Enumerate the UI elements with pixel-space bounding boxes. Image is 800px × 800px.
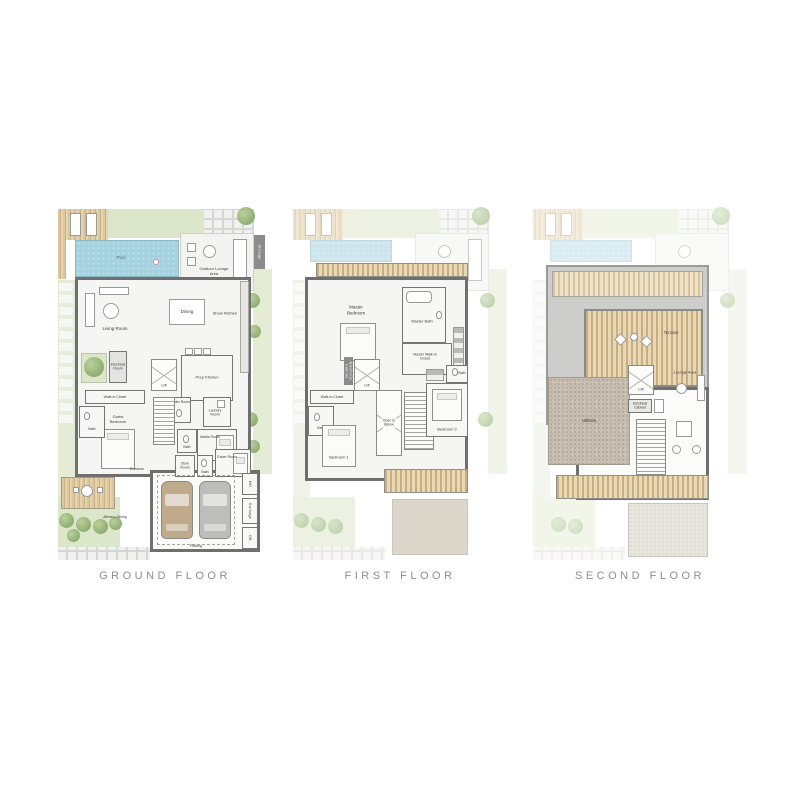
tree bbox=[59, 513, 74, 528]
lift-label: Lift bbox=[364, 383, 369, 388]
cabinet-box bbox=[654, 399, 664, 413]
garbage-closet: Garbage bbox=[242, 498, 258, 524]
appliance-box bbox=[203, 348, 211, 355]
tree bbox=[67, 529, 80, 542]
upper-canopy-band bbox=[552, 271, 703, 297]
lift-label: Lift bbox=[161, 383, 166, 388]
db-label: DB bbox=[248, 535, 252, 541]
walkin-label: Walk-In Closet bbox=[310, 395, 354, 399]
appliance-box bbox=[185, 348, 193, 355]
guest-bed bbox=[101, 429, 135, 469]
living-label: Living Room bbox=[100, 326, 130, 332]
pool-float bbox=[153, 259, 159, 265]
car bbox=[161, 481, 193, 539]
toilet bbox=[183, 435, 189, 443]
appliance-box bbox=[194, 348, 202, 355]
coffee-table bbox=[103, 303, 119, 319]
utilities-label: Utilities bbox=[582, 418, 597, 424]
tree bbox=[93, 519, 108, 534]
second-floor-title: SECOND FLOOR bbox=[532, 570, 748, 582]
ground-floor-title: GROUND FLOOR bbox=[57, 570, 273, 582]
alfresco-table bbox=[81, 485, 93, 497]
dining-label: Dining bbox=[181, 309, 194, 315]
guest-bath bbox=[79, 406, 105, 438]
entrance-label: Entrance bbox=[130, 467, 144, 471]
closet-cubbies bbox=[426, 369, 444, 381]
sofa bbox=[99, 287, 129, 295]
bath-2-label: Bath bbox=[458, 371, 465, 375]
lounge-sofa bbox=[697, 375, 705, 401]
master-bath-label: Master Bath bbox=[411, 319, 433, 324]
guest-bedroom-label: Guest Bedroom bbox=[106, 414, 130, 424]
md-closet: MD bbox=[242, 473, 258, 495]
walkin-label: Walk-In Closet bbox=[85, 395, 145, 399]
lower-canopy-band bbox=[556, 475, 709, 499]
first-floor-plan: Canopy Master Bedroom Master Bath Master… bbox=[292, 207, 508, 561]
pavers-bottom bbox=[58, 547, 150, 560]
maids-label: Maids Room bbox=[198, 435, 222, 439]
toilet bbox=[314, 413, 320, 421]
md-label: MD bbox=[248, 481, 252, 487]
open-to-below-label: Open to Below bbox=[379, 419, 399, 428]
parking-label: Parking bbox=[190, 544, 202, 548]
patio-sofa bbox=[233, 239, 247, 281]
lounge-table bbox=[676, 383, 687, 394]
master-wic-label: Master Walk-In Closet bbox=[410, 353, 440, 362]
patio-chair bbox=[187, 257, 196, 266]
lounge-chair bbox=[692, 445, 701, 454]
car bbox=[199, 481, 231, 539]
sun-lounger bbox=[70, 213, 81, 236]
kitchen-counter bbox=[240, 281, 249, 373]
toilet bbox=[176, 409, 182, 417]
electrical-cabinet-label: Electrical Cabinet bbox=[630, 402, 650, 411]
store-label: Store Room bbox=[177, 462, 193, 471]
storage-closet: Storage bbox=[254, 235, 265, 269]
bedroom1-label: Bedroom 1 bbox=[324, 455, 354, 460]
terrace-label: Terrace bbox=[663, 330, 678, 336]
toilet bbox=[84, 412, 90, 420]
roof-gravel bbox=[628, 503, 708, 557]
second-floor-plan: Terrace Utilities Lift Electrical Cabine… bbox=[532, 207, 748, 561]
courtyard-tree bbox=[84, 357, 104, 377]
canopy-band bbox=[316, 263, 468, 277]
toilet bbox=[436, 311, 442, 319]
master-bed bbox=[340, 323, 376, 361]
tree bbox=[237, 207, 255, 225]
terrace-table bbox=[630, 333, 638, 341]
alfresco-chair bbox=[97, 487, 103, 493]
outdoor-lounge-label: Outdoor Lounge Area bbox=[197, 266, 231, 276]
alfresco-chair bbox=[73, 487, 79, 493]
tree bbox=[76, 517, 91, 532]
show-kitchen-label: Show Kitchen bbox=[212, 311, 238, 316]
toilet bbox=[201, 459, 207, 467]
games-table bbox=[676, 421, 692, 437]
lift-label: Lift bbox=[638, 387, 643, 392]
bedroom1-bed bbox=[322, 425, 356, 467]
patio-chair bbox=[187, 243, 196, 252]
sofa bbox=[85, 293, 95, 327]
master-bedroom-label: Master Bedroom bbox=[341, 304, 371, 315]
lower-canopy-band bbox=[384, 469, 468, 493]
electrical-cabinet-label: Electrical Cabinet bbox=[345, 362, 353, 380]
toilet bbox=[452, 368, 458, 376]
guest-bath-label: Bath bbox=[88, 427, 95, 431]
lounge-chair bbox=[672, 445, 681, 454]
stairs bbox=[153, 397, 175, 445]
storage-label: Storage bbox=[258, 244, 262, 259]
db-closet: DB bbox=[242, 527, 258, 549]
prep-kitchen-label: Prep Kitchen bbox=[194, 375, 220, 380]
electrical-label: Electrical Room bbox=[110, 363, 126, 372]
pool-label: Pool bbox=[116, 255, 125, 261]
bedroom2-label: Bedroom 2 bbox=[432, 427, 462, 432]
bedroom2-bed bbox=[432, 389, 462, 421]
driver-label: Driver Room bbox=[216, 455, 238, 459]
roof-gravel bbox=[392, 499, 468, 555]
stairs bbox=[636, 419, 666, 475]
alfresco-label: Alfresco Dining bbox=[102, 515, 128, 519]
washer bbox=[217, 400, 225, 408]
pool bbox=[75, 240, 179, 277]
maids-bath-label: Bath bbox=[183, 445, 190, 449]
garbage-label: Garbage bbox=[248, 503, 252, 519]
ground-floor-plan: Pool Outdoor Lounge Area Storage Living … bbox=[57, 207, 273, 561]
floor-plan-sheet: Pool Outdoor Lounge Area Storage Living … bbox=[0, 0, 800, 800]
patio-table bbox=[203, 245, 216, 258]
first-floor-title: FIRST FLOOR bbox=[292, 570, 508, 582]
laundry-label: Laundry Room bbox=[204, 409, 226, 418]
electrical-cabinet: Electrical Cabinet bbox=[344, 357, 353, 385]
side-deck-wood bbox=[58, 209, 66, 279]
lounge-label: Lounge Area bbox=[673, 370, 697, 375]
driver-bath-label: Bath bbox=[201, 470, 208, 474]
paver-column-left bbox=[59, 283, 73, 423]
bathtub bbox=[406, 291, 432, 303]
sun-lounger bbox=[86, 213, 97, 236]
